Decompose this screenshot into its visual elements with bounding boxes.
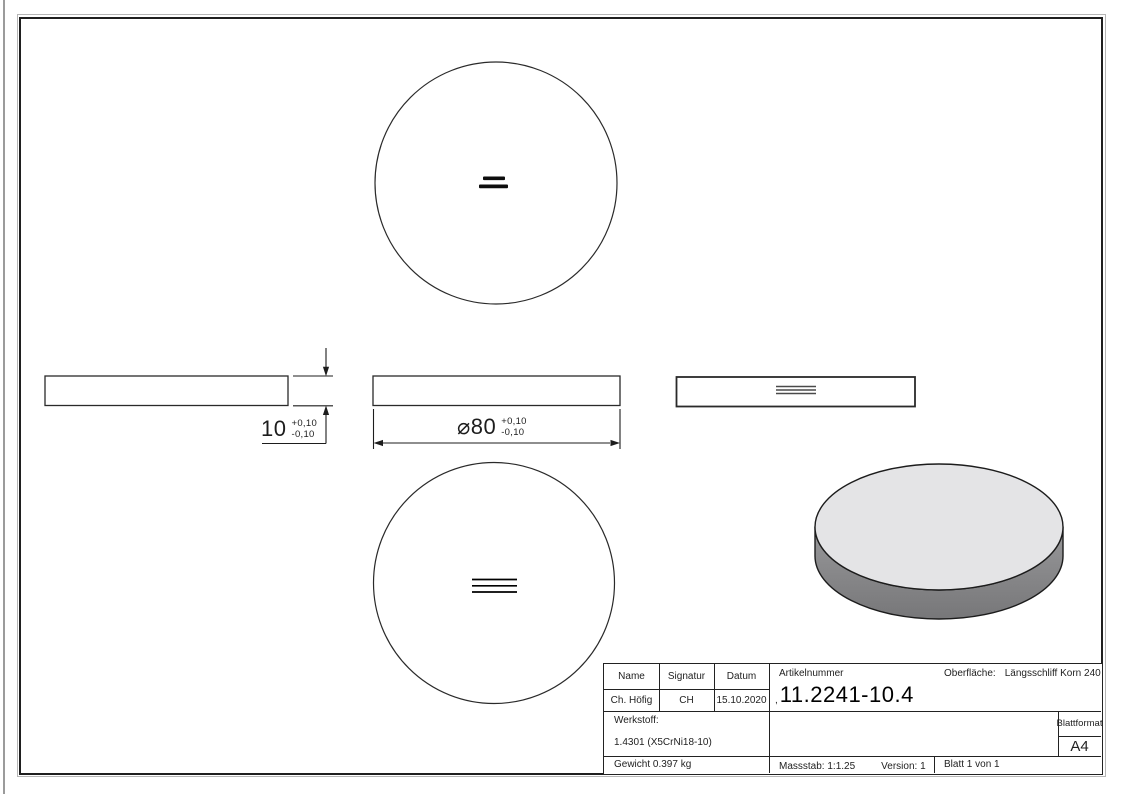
side-view-right-rect [677, 377, 916, 407]
center-marking-line-2 [479, 185, 508, 189]
side-view-left-rect [45, 376, 288, 406]
tb-vline-3 [769, 664, 770, 773]
top-view-circle [375, 62, 617, 304]
blattformat-label: Blattformat [1057, 718, 1103, 729]
signatur-header-cell: Signatur [659, 664, 714, 689]
signatur-header: Signatur [668, 671, 705, 682]
name-header-cell: Name [604, 664, 659, 689]
center-marking-line-1 [483, 177, 505, 181]
thickness-value: 10 [261, 416, 286, 442]
blattformat-value: A4 [1070, 738, 1088, 755]
name-header: Name [618, 671, 645, 682]
name-value: Ch. Höfig [611, 695, 653, 706]
blattformat-value-cell: A4 [1058, 736, 1101, 756]
diameter-tol-minus: -0,10 [501, 427, 527, 438]
tb-vline-4 [934, 756, 935, 773]
thickness-dimension: 10 +0,10 -0,10 [261, 415, 317, 442]
tb-hline-2 [604, 711, 1101, 712]
side-view-front-rect [373, 376, 620, 406]
werkstoff-label: Werkstoff: [614, 715, 659, 726]
werkstoff-value: 1.4301 (X5CrNi18-10) [614, 737, 712, 748]
diameter-tol-plus: +0,10 [501, 416, 527, 427]
oberflaeche-label: Oberfläche: [944, 668, 996, 679]
blatt-cell: Blatt 1 von 1 [944, 756, 1094, 773]
datum-value-cell: 15.10.2020 [714, 689, 769, 711]
artikelnummer-label: Artikelnummer [779, 668, 843, 679]
bottom-view-circle [374, 463, 615, 704]
oberflaeche-value: Längsschliff Korn 240 [1005, 668, 1101, 679]
drawing-sheet: 10 +0,10 -0,10 ⌀80 +0,10 -0,10 Name Sign… [0, 0, 1123, 794]
thickness-tol-minus: -0,10 [291, 429, 317, 440]
signatur-value-cell: CH [659, 689, 714, 711]
artikelnummer-value: 11.2241-10.4 [780, 682, 914, 708]
blatt-value: Blatt 1 von 1 [944, 759, 1000, 770]
datum-value: 15.10.2020 [716, 695, 766, 706]
disc-top-face [815, 464, 1063, 590]
thickness-tolerance: +0,10 -0,10 [291, 418, 317, 440]
artikelnummer-row: , 11.2241-10.4 [775, 682, 914, 708]
massstab-cell: Massstab: 1:1.25 Version: 1 [779, 756, 926, 776]
signatur-value: CH [679, 695, 693, 706]
iso-view-disc [815, 464, 1063, 619]
datum-header: Datum [727, 671, 756, 682]
version-value: Version: 1 [881, 761, 925, 772]
massstab-value: Massstab: 1:1.25 [779, 761, 855, 772]
blattformat-label-cell: Blattformat [1058, 711, 1101, 736]
gewicht-cell: Gewicht 0.397 kg [614, 756, 764, 773]
artikelnummer-prefix: , [775, 695, 778, 708]
name-value-cell: Ch. Höfig [604, 689, 659, 711]
datum-header-cell: Datum [714, 664, 769, 689]
diameter-tolerance: +0,10 -0,10 [501, 416, 527, 438]
gewicht-value: Gewicht 0.397 kg [614, 759, 691, 770]
thickness-tol-plus: +0,10 [291, 418, 317, 429]
diameter-dimension: ⌀80 +0,10 -0,10 [457, 413, 527, 441]
title-block: Name Signatur Datum Ch. Höfig CH 15.10.2… [603, 663, 1103, 775]
oberflaeche-row: Oberfläche: Längsschliff Korn 240 [944, 668, 1101, 679]
diameter-value: ⌀80 [457, 414, 496, 440]
